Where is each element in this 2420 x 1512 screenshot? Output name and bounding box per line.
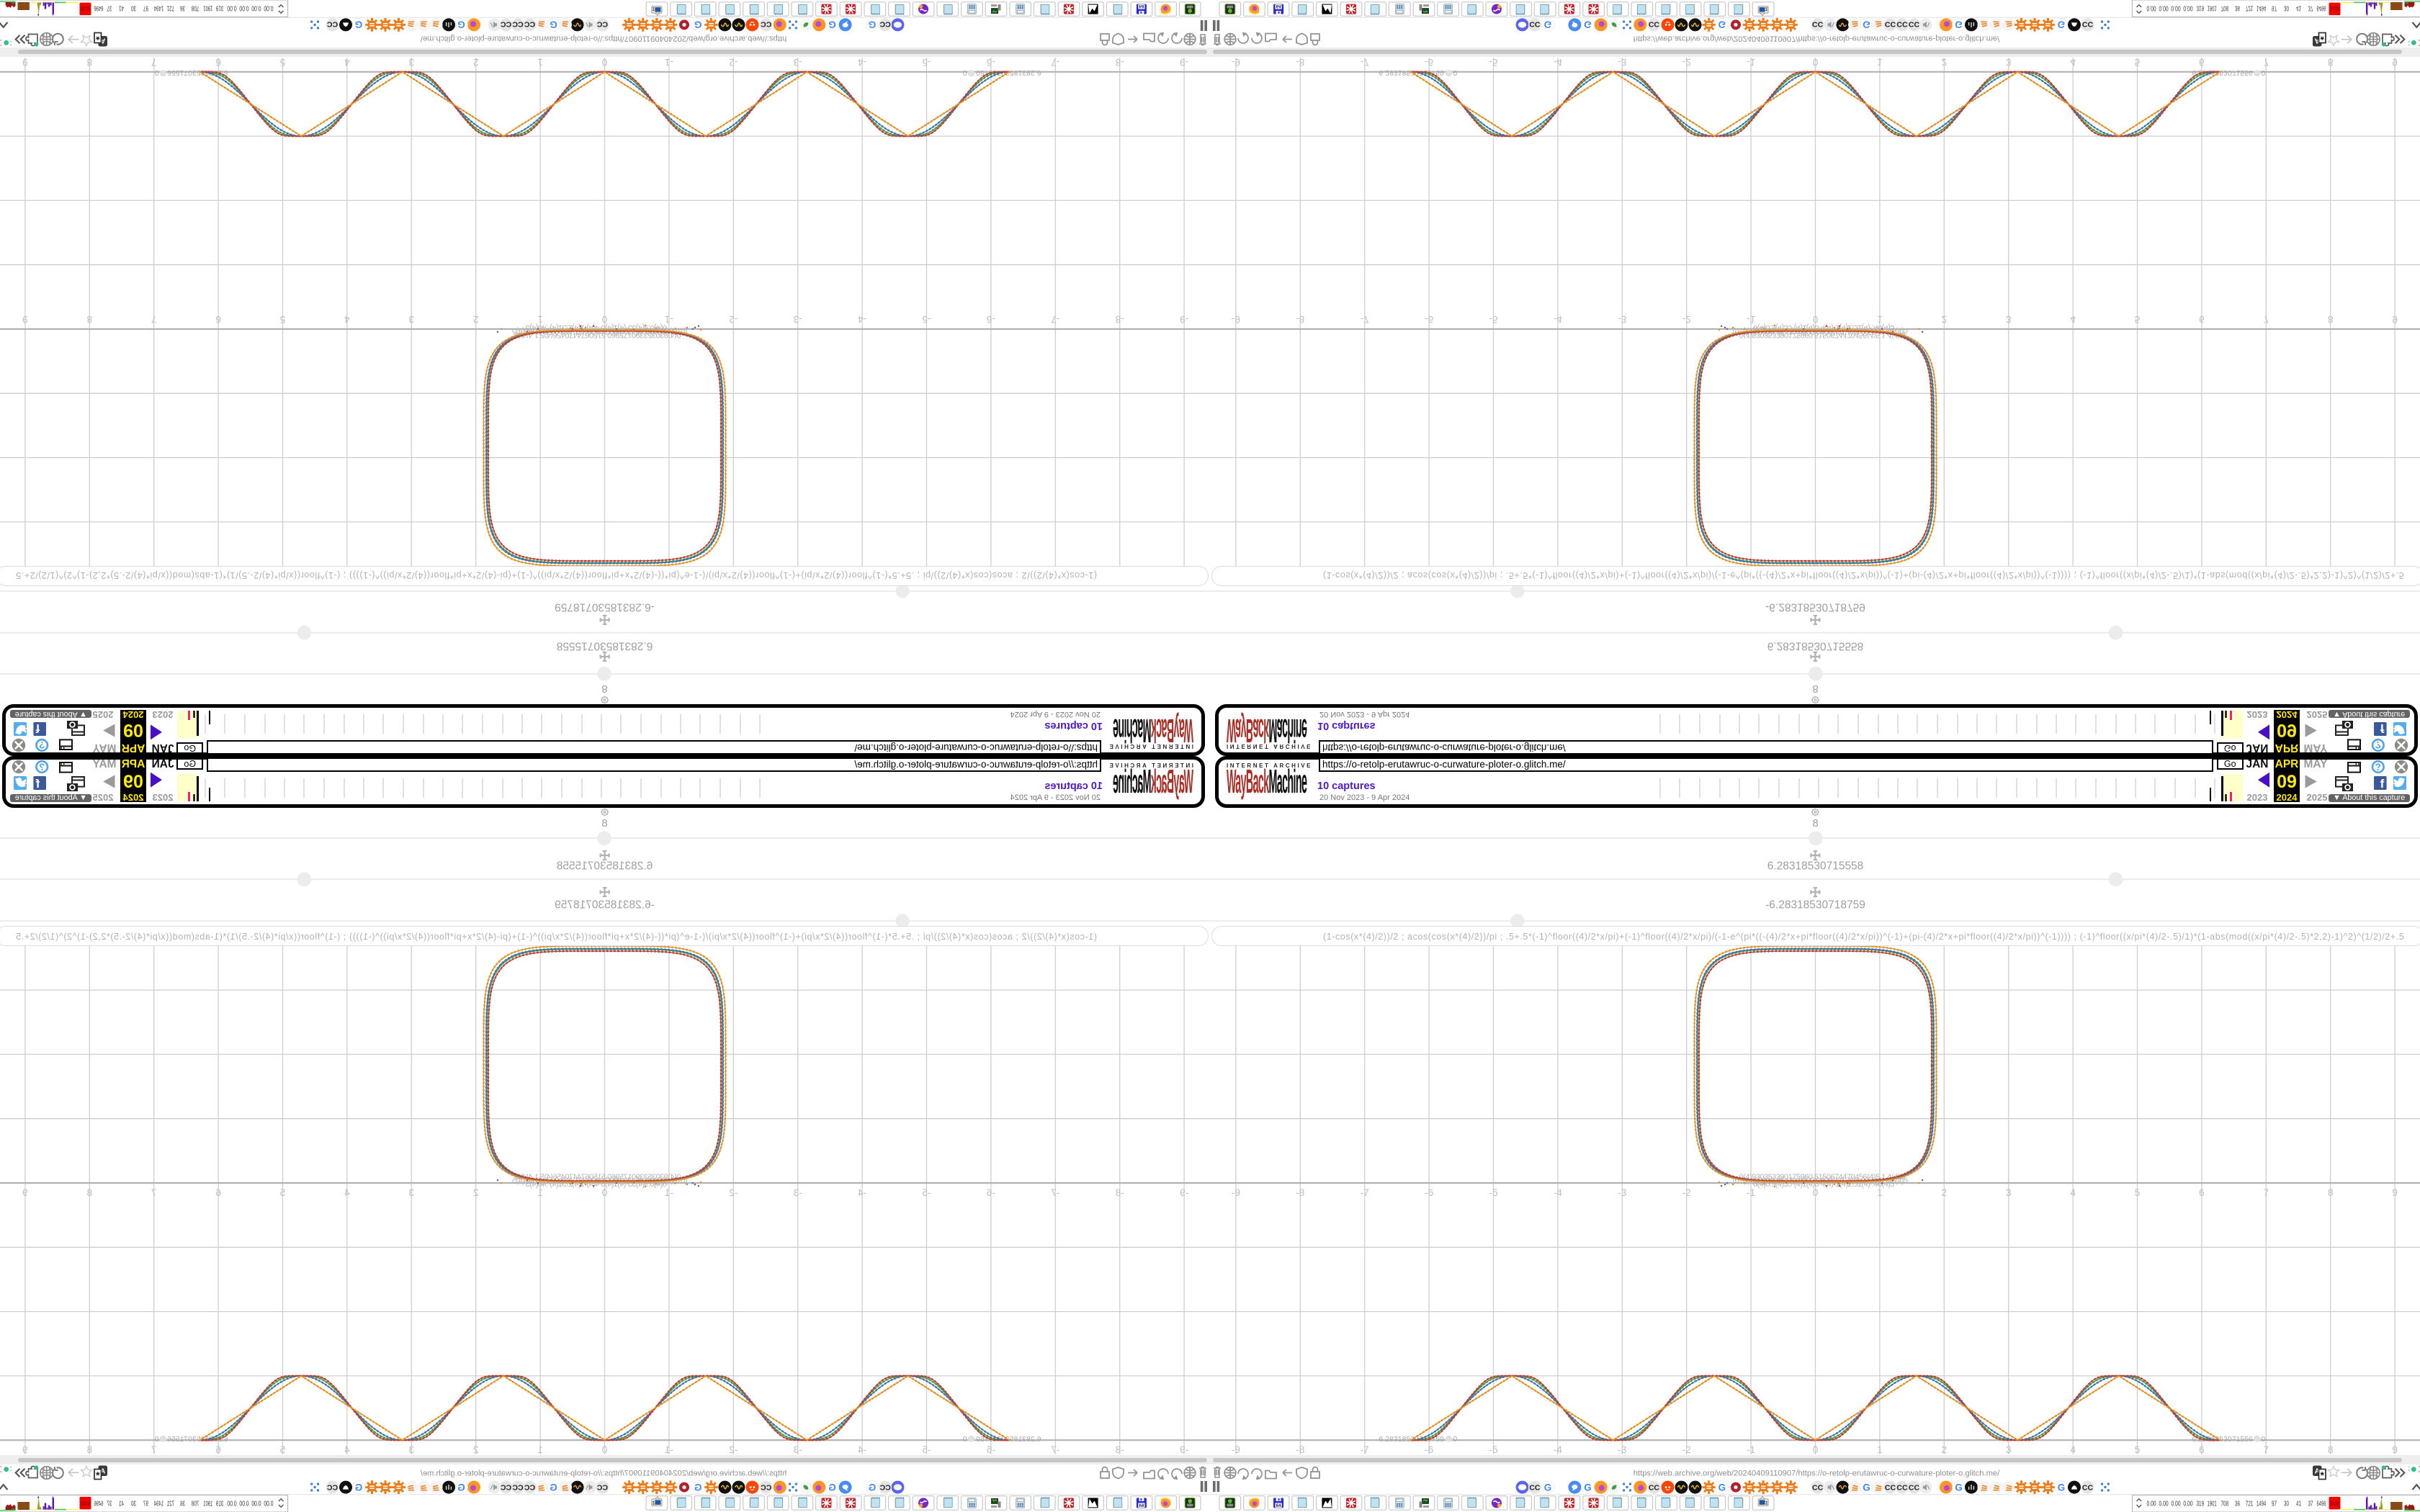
svg-text:0.00: 0.00 <box>251 1500 261 1508</box>
svg-text:721: 721 <box>166 1500 174 1508</box>
svg-text:CC: CC <box>512 19 524 28</box>
svg-text:0.00: 0.00 <box>239 1500 248 1508</box>
svg-text:G: G <box>828 19 836 30</box>
svg-text:41: 41 <box>119 1500 124 1508</box>
svg-text:CC: CC <box>879 19 891 28</box>
svg-text:30: 30 <box>131 4 136 12</box>
svg-text:CC: CC <box>1909 1484 1920 1493</box>
svg-text:36: 36 <box>2235 4 2240 12</box>
svg-text:G: G <box>1955 1482 1963 1493</box>
svg-text:97: 97 <box>143 4 148 12</box>
svg-text:CC: CC <box>1649 19 1660 28</box>
svg-text:9448: 9448 <box>80 4 90 12</box>
svg-text:6496: 6496 <box>2317 1500 2326 1508</box>
svg-text:CC: CC <box>1909 19 1920 28</box>
svg-text:G: G <box>1584 1482 1592 1493</box>
svg-text:0.00: 0.00 <box>2147 1500 2156 1508</box>
svg-text:319: 319 <box>2197 1500 2205 1508</box>
svg-text:319: 319 <box>216 1500 224 1508</box>
svg-text:36: 36 <box>180 4 185 12</box>
svg-text:30: 30 <box>2284 1500 2289 1508</box>
svg-text:0.00: 0.00 <box>264 4 273 12</box>
svg-text:37: 37 <box>107 4 112 12</box>
svg-text:1901: 1901 <box>203 4 212 12</box>
svg-text:0.00: 0.00 <box>2183 4 2192 12</box>
svg-text:G: G <box>550 1482 557 1493</box>
svg-text:CC: CC <box>1885 19 1896 28</box>
svg-text:G: G <box>694 1482 702 1493</box>
svg-text:1494: 1494 <box>154 1500 163 1508</box>
svg-text:6496: 6496 <box>94 4 103 12</box>
svg-text:G: G <box>869 19 877 30</box>
svg-text:https://web.archive.org/web/20: https://web.archive.org/web/202404091109… <box>420 35 786 43</box>
svg-text:9448: 9448 <box>80 1500 90 1508</box>
svg-text:37: 37 <box>2308 1500 2313 1508</box>
svg-text:CC: CC <box>761 19 772 28</box>
svg-text:37: 37 <box>107 1500 112 1508</box>
svg-text:G: G <box>457 19 465 30</box>
svg-text:97: 97 <box>2272 1500 2277 1508</box>
svg-text:41: 41 <box>2296 4 2301 12</box>
svg-text:9448: 9448 <box>2330 1500 2340 1508</box>
svg-text:0.00: 0.00 <box>227 4 236 12</box>
svg-text:CC: CC <box>1649 1484 1660 1493</box>
svg-text:708: 708 <box>192 4 200 12</box>
svg-text:0.00: 0.00 <box>2171 4 2180 12</box>
svg-text:CC: CC <box>524 19 536 28</box>
svg-text:0.00: 0.00 <box>2147 4 2156 12</box>
svg-text:CC: CC <box>327 1484 339 1493</box>
svg-text:0.00: 0.00 <box>2159 1500 2169 1508</box>
svg-text:37: 37 <box>2308 4 2313 12</box>
svg-text:G: G <box>1544 1482 1552 1493</box>
svg-text:41: 41 <box>119 4 124 12</box>
svg-text:6496: 6496 <box>94 1500 103 1508</box>
svg-text:CC: CC <box>327 19 339 28</box>
svg-text:CC: CC <box>512 1484 524 1493</box>
svg-text:721: 721 <box>166 4 174 12</box>
svg-text:CC: CC <box>501 1484 512 1493</box>
svg-text:721: 721 <box>2246 1500 2254 1508</box>
svg-text:0.00: 0.00 <box>251 4 261 12</box>
svg-text:1494: 1494 <box>2257 1500 2266 1508</box>
svg-text:G: G <box>2058 1482 2066 1493</box>
svg-text:CC: CC <box>1812 19 1824 28</box>
svg-text:G: G <box>828 1482 836 1493</box>
svg-text:CC: CC <box>1529 1484 1541 1493</box>
svg-text:G: G <box>1955 19 1963 30</box>
svg-text:708: 708 <box>2221 1500 2229 1508</box>
svg-text:CC: CC <box>761 1484 772 1493</box>
svg-text:CC: CC <box>596 1484 608 1493</box>
svg-text:64: 64 <box>1139 1504 1144 1508</box>
svg-text:1494: 1494 <box>2257 4 2266 12</box>
svg-text:64: 64 <box>1276 1504 1281 1508</box>
svg-text:CC: CC <box>879 1484 891 1493</box>
svg-text:319: 319 <box>2197 4 2205 12</box>
svg-text:1494: 1494 <box>154 4 163 12</box>
svg-text:CC: CC <box>2082 19 2094 28</box>
svg-text:0.00: 0.00 <box>264 1500 273 1508</box>
svg-text:G: G <box>869 1482 877 1493</box>
svg-text:708: 708 <box>192 1500 200 1508</box>
svg-text:319: 319 <box>216 4 224 12</box>
svg-text:0.00: 0.00 <box>2159 4 2169 12</box>
svg-text:CC: CC <box>524 1484 536 1493</box>
svg-text:G: G <box>550 19 557 30</box>
svg-text:1901: 1901 <box>203 1500 212 1508</box>
svg-text:721: 721 <box>2246 4 2254 12</box>
svg-text:https://web.archive.org/web/20: https://web.archive.org/web/202404091109… <box>1633 1470 2000 1478</box>
svg-text:G: G <box>1863 1482 1870 1493</box>
svg-text:1901: 1901 <box>2208 4 2217 12</box>
svg-text:0.00: 0.00 <box>2171 1500 2180 1508</box>
svg-text:G: G <box>1544 19 1552 30</box>
svg-text:30: 30 <box>2284 4 2289 12</box>
svg-text:G: G <box>694 19 702 30</box>
svg-text:41: 41 <box>2296 1500 2301 1508</box>
svg-text:1901: 1901 <box>2208 1500 2217 1508</box>
svg-text:0.00: 0.00 <box>2183 1500 2192 1508</box>
svg-text:30: 30 <box>131 1500 136 1508</box>
svg-text:G: G <box>1863 19 1870 30</box>
svg-text:0.00: 0.00 <box>227 1500 236 1508</box>
svg-text:97: 97 <box>143 1500 148 1508</box>
svg-text:97: 97 <box>2272 4 2277 12</box>
svg-text:36: 36 <box>180 1500 185 1508</box>
svg-text:G: G <box>1718 1482 1726 1493</box>
svg-text:9448: 9448 <box>2330 4 2340 12</box>
svg-text:708: 708 <box>2221 4 2229 12</box>
svg-text:CC: CC <box>596 19 608 28</box>
svg-text:64: 64 <box>1276 4 1281 8</box>
svg-text:CC: CC <box>1896 1484 1908 1493</box>
svg-text:0.00: 0.00 <box>239 4 248 12</box>
svg-text:CC: CC <box>1896 19 1908 28</box>
svg-text:https://web.archive.org/web/20: https://web.archive.org/web/202404091109… <box>1633 35 2000 43</box>
svg-text:G: G <box>355 1482 363 1493</box>
svg-text:64: 64 <box>1139 4 1144 8</box>
svg-text:G: G <box>1584 19 1592 30</box>
svg-text:CC: CC <box>1529 19 1541 28</box>
svg-text:G: G <box>355 19 363 30</box>
svg-text:https://web.archive.org/web/20: https://web.archive.org/web/202404091109… <box>420 1470 786 1478</box>
svg-text:CC: CC <box>501 19 512 28</box>
svg-text:G: G <box>1718 19 1726 30</box>
svg-text:CC: CC <box>1812 1484 1824 1493</box>
svg-text:6496: 6496 <box>2317 4 2326 12</box>
svg-text:36: 36 <box>2235 1500 2240 1508</box>
svg-text:G: G <box>2058 19 2066 30</box>
svg-text:CC: CC <box>2082 1484 2094 1493</box>
svg-text:CC: CC <box>1885 1484 1896 1493</box>
svg-text:G: G <box>457 1482 465 1493</box>
